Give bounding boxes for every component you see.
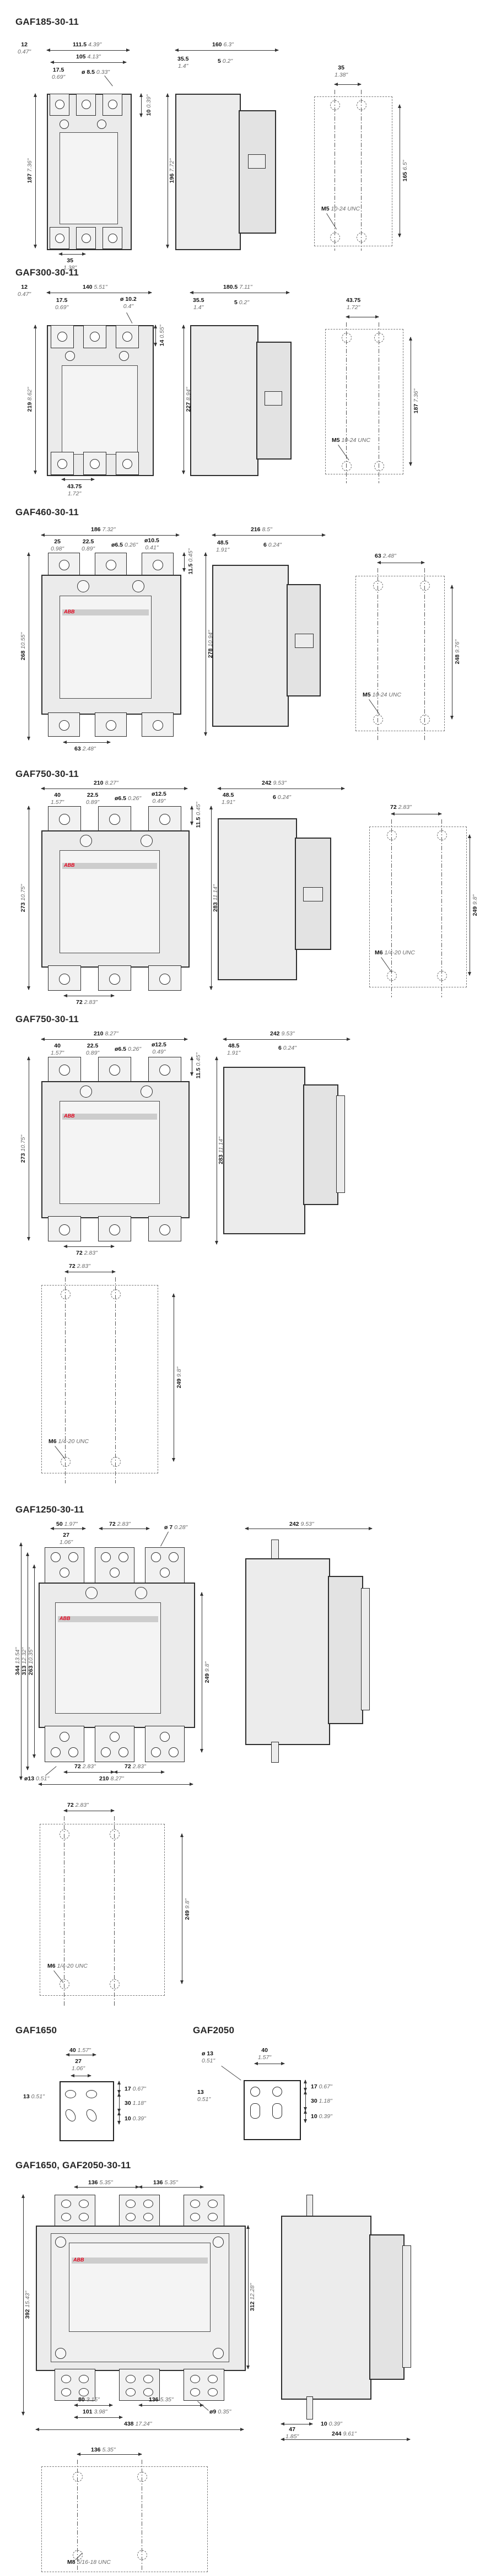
dim-w438: 438 17.24" xyxy=(124,2421,152,2428)
dim-line xyxy=(141,94,142,117)
dim-height: 187 7.36" xyxy=(26,159,33,183)
dim-line xyxy=(305,2080,306,2091)
dim-r30: 30 1.18" xyxy=(311,2098,332,2105)
side-block xyxy=(303,1084,338,1205)
thread-label: M5 10-24 UNC xyxy=(332,437,370,444)
section-title: GAF1250-30-11 xyxy=(15,1504,84,1515)
terminal-hole xyxy=(68,1552,78,1562)
dim-line xyxy=(29,553,29,740)
mounting-hole xyxy=(420,581,430,591)
side-block xyxy=(328,1576,363,1724)
dim-b72a: 72 2.83" xyxy=(74,1763,96,1770)
terminal xyxy=(48,1057,81,1082)
mounting-outline xyxy=(325,329,403,474)
terminal xyxy=(51,452,74,475)
terminal-hole xyxy=(143,2375,153,2383)
terminal-slot xyxy=(250,2103,260,2119)
mounting-outline xyxy=(40,1824,165,1996)
terminal-hole xyxy=(79,2388,89,2396)
dim-line xyxy=(255,2064,284,2064)
terminal xyxy=(76,227,96,249)
dim-line xyxy=(71,2076,91,2076)
dim-depth: 242 9.53" xyxy=(270,1030,295,1038)
dim-r17: 17 0.67" xyxy=(125,2086,146,2093)
mounting-outline xyxy=(355,576,445,731)
dim-line xyxy=(391,814,441,814)
dim-line xyxy=(184,553,185,571)
terminal-hole xyxy=(109,814,120,825)
leader-line xyxy=(45,1766,57,1776)
terminal xyxy=(119,2195,160,2227)
dim-height: 268 10.55" xyxy=(20,633,26,660)
dim-line xyxy=(29,1057,29,1240)
terminal-hole xyxy=(169,1552,179,1562)
dim-hole-pitch: 63 2.48" xyxy=(375,553,396,560)
dim-line xyxy=(212,535,325,536)
dim-line xyxy=(182,1834,182,1984)
dim-a: 35.51.4" xyxy=(177,56,188,69)
front-view: 120.47" 111.5 4.39" 105 4.13" 17.50.69" … xyxy=(17,41,160,262)
thread-label: M6 1/4-20 UNC xyxy=(375,949,415,957)
terminal-hole xyxy=(55,234,64,243)
screw xyxy=(80,835,92,847)
terminal xyxy=(116,325,139,348)
dim-p1: 401.57" xyxy=(51,1043,64,1056)
dim-line xyxy=(305,2091,306,2110)
dim-line xyxy=(62,479,94,480)
terminal-hole xyxy=(190,2388,200,2396)
terminal xyxy=(98,1057,131,1082)
terminal-hole xyxy=(79,2213,89,2221)
coil-block xyxy=(303,887,323,901)
dim-line xyxy=(51,1529,85,1529)
dim-bottom-pitch: 63 2.48" xyxy=(74,746,96,753)
dim-p2: 22.50.89" xyxy=(86,1043,99,1056)
terminal xyxy=(48,712,80,737)
terminal-hole xyxy=(82,100,91,109)
terminal-hole xyxy=(51,1747,61,1757)
dim-hole: ø 10.20.4" xyxy=(120,296,137,310)
terminal-hole xyxy=(110,1568,120,1578)
section-gaf300: GAF300-30-11 120.47" 140 5.51" 17.50.69"… xyxy=(0,264,496,504)
side-block xyxy=(239,110,276,234)
terminal-hole xyxy=(208,2388,218,2396)
side-body xyxy=(281,2216,371,2400)
dim-line xyxy=(47,50,130,51)
front-panel xyxy=(62,365,138,455)
dim-h344: 344 13.54" xyxy=(14,1648,21,1675)
mounting-hole xyxy=(73,2472,83,2482)
terminal-hole xyxy=(153,560,163,570)
dim-height: 273 10.75" xyxy=(20,884,26,912)
mounting-view: 43.751.72" 187 7.36" M5 10-24 UNC xyxy=(309,284,427,504)
dim-bottom-pitch: 72 2.83" xyxy=(76,999,98,1006)
dim-line xyxy=(305,2110,306,2123)
leader-line xyxy=(160,1531,169,1546)
terminal xyxy=(83,325,106,348)
terminal-hole xyxy=(108,100,117,109)
terminal-hole xyxy=(159,814,170,825)
section-title: GAF2050 xyxy=(193,2025,234,2036)
abb-logo: ABB xyxy=(60,1616,71,1621)
front-panel: ABB xyxy=(69,2243,211,2332)
section-title: GAF1650 xyxy=(15,2025,57,2036)
terminal-hole xyxy=(106,560,116,570)
terminal-hole xyxy=(208,2200,218,2208)
terminal-hole xyxy=(101,1747,111,1757)
screw xyxy=(141,1086,153,1098)
mounting-hole xyxy=(111,1457,121,1467)
dim-hole-height: 249 9.8" xyxy=(184,1899,191,1920)
mounting-view: 63 2.48" 248 9.76" M5 10-24 UNC xyxy=(336,526,468,760)
mounting-hole xyxy=(373,715,383,725)
mounting-hole xyxy=(330,100,340,110)
abb-logo: ABB xyxy=(64,1113,75,1119)
dim-line xyxy=(74,2187,139,2188)
mounting-outline xyxy=(41,1285,158,1473)
dim-line xyxy=(411,337,411,466)
terminal-hole xyxy=(126,2213,136,2221)
section-title: GAF185-30-11 xyxy=(15,17,79,28)
terminal-hole xyxy=(101,1552,111,1562)
dim-line xyxy=(51,62,126,63)
dim-w136a: 136 5.35" xyxy=(88,2179,113,2186)
mounting-hole xyxy=(110,1979,120,1989)
dim-top: 11.5 0.45" xyxy=(195,802,202,828)
dim-overall-width: 140 5.51" xyxy=(83,284,107,291)
dim-hole1: ø6.5 0.26" xyxy=(111,542,138,549)
screw xyxy=(132,580,144,592)
leader-line xyxy=(126,312,132,323)
side-view: 180.5 7.11" 35.51.4" 5 0.2" 227 8.94" xyxy=(182,284,300,504)
terminal-hole xyxy=(151,1552,161,1562)
dim-p40: 401.57" xyxy=(258,2047,271,2061)
terminal-hole xyxy=(51,1552,61,1562)
dim-line xyxy=(139,2405,203,2406)
terminal-hole xyxy=(90,332,100,342)
dim-line xyxy=(139,2187,203,2188)
terminal-hole xyxy=(68,1747,78,1757)
dim-line xyxy=(192,1057,192,1076)
terminal xyxy=(51,325,74,348)
dim-line xyxy=(245,1529,372,1529)
terminal xyxy=(184,2369,224,2401)
dim-w210: 210 8.27" xyxy=(99,1775,124,1783)
dim-overall-width: 210 8.27" xyxy=(94,780,118,787)
terminal-stem xyxy=(271,1742,279,1763)
dim-line xyxy=(168,94,168,248)
dim-a: 48.51.91" xyxy=(216,539,229,553)
dim-p72: 72 2.83" xyxy=(109,1521,131,1528)
terminal-hole xyxy=(59,720,69,731)
front-view: 50 1.97" 271.06" 72 2.83" ø 7 0.28" 344 … xyxy=(17,1521,215,1796)
terminal xyxy=(48,553,80,577)
terminal xyxy=(50,94,69,116)
section-terminal-details: GAF1650 GAF2050 40 1.57" 271.06" 13 0.51… xyxy=(0,2017,496,2154)
dim-p2: 22.50.89" xyxy=(86,792,99,806)
side-view: 216 8.5" 48.51.91" 6 0.24" 278 10.94" xyxy=(204,526,331,760)
dim-line xyxy=(184,325,184,474)
terminal xyxy=(116,452,139,475)
terminal xyxy=(148,1057,181,1082)
terminal-hole xyxy=(106,720,116,731)
dim-line xyxy=(64,1772,114,1773)
dim-depth: 216 8.5" xyxy=(251,526,272,533)
dim-h392: 392 15.43" xyxy=(24,2291,31,2319)
section-gaf1250: GAF1250-30-11 50 1.97" 271.06" 72 2.83" … xyxy=(0,1496,496,2017)
mounting-hole xyxy=(373,581,383,591)
dim-line xyxy=(192,806,192,825)
dim-depth: 242 9.53" xyxy=(289,1521,314,1528)
terminal xyxy=(95,1547,134,1584)
dim-top: 11.5 0.45" xyxy=(195,1053,202,1079)
terminal-hole xyxy=(86,2090,97,2098)
side-body xyxy=(223,1067,305,1234)
front-panel: ABB xyxy=(60,1101,160,1204)
terminal-hole xyxy=(159,1065,170,1076)
terminal-hole xyxy=(60,1732,69,1742)
dim-line xyxy=(119,2112,120,2124)
dim-line xyxy=(452,585,452,719)
terminal-hole xyxy=(59,974,70,985)
dim-line xyxy=(470,835,470,975)
dim-r10: 10 0.39" xyxy=(125,2115,146,2123)
terminal-hole xyxy=(208,2213,218,2221)
terminal xyxy=(76,94,96,116)
terminal xyxy=(142,553,174,577)
thread-label: M6 1/4-20 UNC xyxy=(48,1438,89,1445)
leader-line xyxy=(221,2066,241,2081)
dim-p50: 50 1.97" xyxy=(56,1521,78,1528)
dim-a47: 471.85" xyxy=(285,2426,299,2440)
terminal xyxy=(48,806,81,831)
dimension-drawing-page: { "page":{"bg":"#ffffff","ink":"#2e2e2e"… xyxy=(0,0,496,2576)
terminal xyxy=(98,806,131,831)
terminal-hole xyxy=(110,1732,120,1742)
dim-line xyxy=(378,563,424,563)
dim-hole-pitch: 72 2.83" xyxy=(67,1802,89,1809)
terminal-hole xyxy=(190,2375,200,2383)
terminal-hole xyxy=(79,2200,89,2208)
side-view: 471.85" 10 0.39" 244 9.61" xyxy=(270,2179,424,2444)
dim-line xyxy=(119,2081,120,2093)
label-bar: ABB xyxy=(62,609,149,615)
terminal-hole xyxy=(126,2200,136,2208)
dim-w136b: 136 5.35" xyxy=(153,2179,178,2186)
terminal-hole xyxy=(61,2213,71,2221)
side-block xyxy=(369,2234,405,2380)
terminal-detail-gaf2050: ø 130.51" 401.57" 130.51" 17 0.67" 30 1.… xyxy=(193,2047,358,2152)
dim-depth: 160 6.3" xyxy=(212,41,234,48)
terminal-hole xyxy=(151,1747,161,1757)
thread-label: M5 10-24 UNC xyxy=(363,692,401,699)
terminal-hole xyxy=(118,1747,128,1757)
screw xyxy=(55,2237,66,2248)
dim-hole13: ø 130.51" xyxy=(202,2050,215,2064)
abb-logo: ABB xyxy=(64,609,75,614)
screw xyxy=(80,1086,92,1098)
dim-line xyxy=(190,293,289,293)
dim-line xyxy=(155,325,156,346)
side-view: 242 9.53" xyxy=(237,1521,380,1785)
terminal-hole xyxy=(82,234,91,243)
terminal-hole xyxy=(108,234,117,243)
dim-line xyxy=(346,317,379,317)
mounting-hole xyxy=(437,830,447,840)
section-gaf750-b: GAF750-30-11 210 8.27" 401.57" 22.50.89"… xyxy=(0,1008,496,1496)
side-view: 242 9.53" 48.51.91" 6 0.24" 283 11.14" xyxy=(215,1030,358,1257)
dim-line xyxy=(34,1565,35,1758)
dim-offset: 120.47" xyxy=(18,41,31,55)
dim-pitch: 17.50.69" xyxy=(52,67,65,80)
screw xyxy=(213,2348,224,2359)
dim-line xyxy=(47,293,152,293)
terminal xyxy=(148,965,181,991)
screw xyxy=(119,351,129,361)
dim-height: 196 7.72" xyxy=(169,159,175,183)
dim-line xyxy=(66,2055,96,2055)
terminal xyxy=(98,1216,131,1241)
dim-line xyxy=(74,2405,112,2406)
front-view: 136 5.35" 136 5.35" 392 15.43" xyxy=(17,2179,262,2435)
mounting-hole xyxy=(374,461,384,471)
dim-hole2: ø10.50.41" xyxy=(144,537,159,551)
screw xyxy=(141,835,153,847)
rear-flange xyxy=(361,1588,370,1710)
section-title: GAF1650, GAF2050-30-11 xyxy=(15,2160,131,2171)
dim-b136: 136 5.35" xyxy=(149,2396,174,2404)
dim-hole1: ø6.5 0.26" xyxy=(115,795,141,802)
dim-line xyxy=(59,254,85,255)
dim-h249: 249 9.8" xyxy=(204,1662,211,1683)
terminal xyxy=(48,1216,81,1241)
terminal-slot xyxy=(272,2103,282,2119)
terminal-hole xyxy=(126,2388,136,2396)
dim-line xyxy=(35,94,36,248)
terminal-hole xyxy=(60,1568,69,1578)
terminal-hole xyxy=(143,2388,153,2396)
front-panel: ABB xyxy=(60,850,160,953)
terminal-hole xyxy=(118,1552,128,1562)
mounting-hole xyxy=(137,2472,147,2482)
terminal xyxy=(50,227,69,249)
terminal-hole xyxy=(59,814,70,825)
dim-line xyxy=(64,1811,114,1811)
terminal xyxy=(148,1216,181,1241)
label-bar: ABB xyxy=(58,1616,158,1622)
dim-hole-height: 249 9.8" xyxy=(176,1367,182,1389)
dim-b: 6 0.24" xyxy=(263,542,282,549)
dim-b: 5 0.2" xyxy=(218,58,233,65)
label-bar: ABB xyxy=(62,1114,157,1120)
mounting-outline xyxy=(369,827,467,987)
terminal-hole xyxy=(109,1224,120,1235)
terminal-hole xyxy=(109,974,120,985)
dim-line xyxy=(281,2439,410,2440)
terminal-hole xyxy=(109,1065,120,1076)
terminal xyxy=(95,1726,134,1762)
front-view: 120.47" 140 5.51" 17.50.69" ø 10.20.4" 1… xyxy=(17,284,176,504)
dim-line xyxy=(36,2429,244,2430)
dim-pitch: 17.50.69" xyxy=(55,297,68,311)
front-view: 186 7.32" 250.98" 22.50.89" ø6.5 0.26" ø… xyxy=(17,526,198,760)
dim-hole1: ø6.5 0.26" xyxy=(115,1046,141,1053)
thread-label: M8 5/16-18 UNC xyxy=(67,2559,111,2566)
screw xyxy=(60,120,69,129)
section-title: GAF750-30-11 xyxy=(15,769,79,780)
leader-line xyxy=(197,2401,209,2411)
side-view: 242 9.53" 48.51.91" 6 0.24" 283 11.14" xyxy=(209,780,347,1007)
mounting-view: 72 2.83" 249 9.8" M6 1/4-20 UNC xyxy=(17,1802,226,2017)
terminal-hole xyxy=(208,2375,218,2383)
dim-hole13: ø13 0.51" xyxy=(24,1775,49,1783)
dim-height: 219 8.62" xyxy=(26,387,33,412)
dim-line xyxy=(335,84,361,85)
dim-line xyxy=(174,1294,174,1461)
terminal-hole xyxy=(61,2200,71,2208)
dim-d13: 130.51" xyxy=(197,2089,211,2103)
terminal-hole xyxy=(65,2090,76,2098)
dim-hole-pitch: 351.38" xyxy=(335,64,348,78)
dim-hole-height: 187 7.36" xyxy=(413,389,419,414)
section-gaf750-a: GAF750-30-11 210 8.27" 401.57" 22.50.89"… xyxy=(0,763,496,1008)
mounting-hole xyxy=(60,1829,69,1839)
dim-w244: 244 9.61" xyxy=(332,2431,357,2438)
terminal-stem xyxy=(271,1540,279,1560)
terminal-hole xyxy=(272,2087,282,2097)
dim-top: 14 0.55" xyxy=(159,325,165,347)
dim-overall-width: 111.5 4.39" xyxy=(73,41,101,48)
dim-a: 35.51.4" xyxy=(193,297,204,311)
dim-line xyxy=(119,2093,120,2112)
mounting-hole xyxy=(374,333,384,343)
dim-line xyxy=(211,806,212,990)
screw xyxy=(85,1587,98,1599)
terminal-hole xyxy=(61,2375,71,2383)
terminal xyxy=(103,227,122,249)
mounting-view: 72 2.83" 249 9.8" M6 1/4-20 UNC xyxy=(17,1263,215,1496)
section-gaf185: GAF185-30-11 120.47" 111.5 4.39" 105 4.1… xyxy=(0,17,496,264)
terminal-hole xyxy=(59,1065,70,1076)
dim-p1: 250.98" xyxy=(51,538,64,552)
screw xyxy=(97,120,106,129)
mounting-outline xyxy=(314,96,392,246)
terminal-hole xyxy=(250,2087,260,2097)
dim-p2: 22.50.89" xyxy=(82,538,95,552)
mounting-hole xyxy=(61,1289,71,1299)
mounting-outline xyxy=(41,2466,208,2572)
dim-offset: 120.47" xyxy=(18,284,31,298)
dim-hole-height: 165 6.5" xyxy=(402,160,408,182)
dim-hole-height: 249 9.8" xyxy=(472,895,478,916)
terminal-hole xyxy=(159,974,170,985)
dim-line xyxy=(175,50,278,51)
dim-depth: 180.5 7.11" xyxy=(223,284,252,291)
dim-r17: 17 0.67" xyxy=(311,2083,332,2091)
dim-line xyxy=(39,1784,193,1785)
dim-top: 10 0.39" xyxy=(145,95,152,116)
terminal-hole xyxy=(59,560,69,570)
terminal-hole xyxy=(143,2213,153,2221)
dim-hole-pitch: 136 5.35" xyxy=(91,2447,116,2454)
terminal-hole xyxy=(90,459,100,469)
dim-line xyxy=(218,789,344,789)
front-view: 210 8.27" 401.57" 22.50.89" ø6.5 0.26" ø… xyxy=(17,1030,204,1257)
dim-d13: 13 0.51" xyxy=(23,2093,45,2100)
terminal xyxy=(184,2195,224,2227)
terminal xyxy=(48,965,81,991)
side-body xyxy=(218,818,297,980)
